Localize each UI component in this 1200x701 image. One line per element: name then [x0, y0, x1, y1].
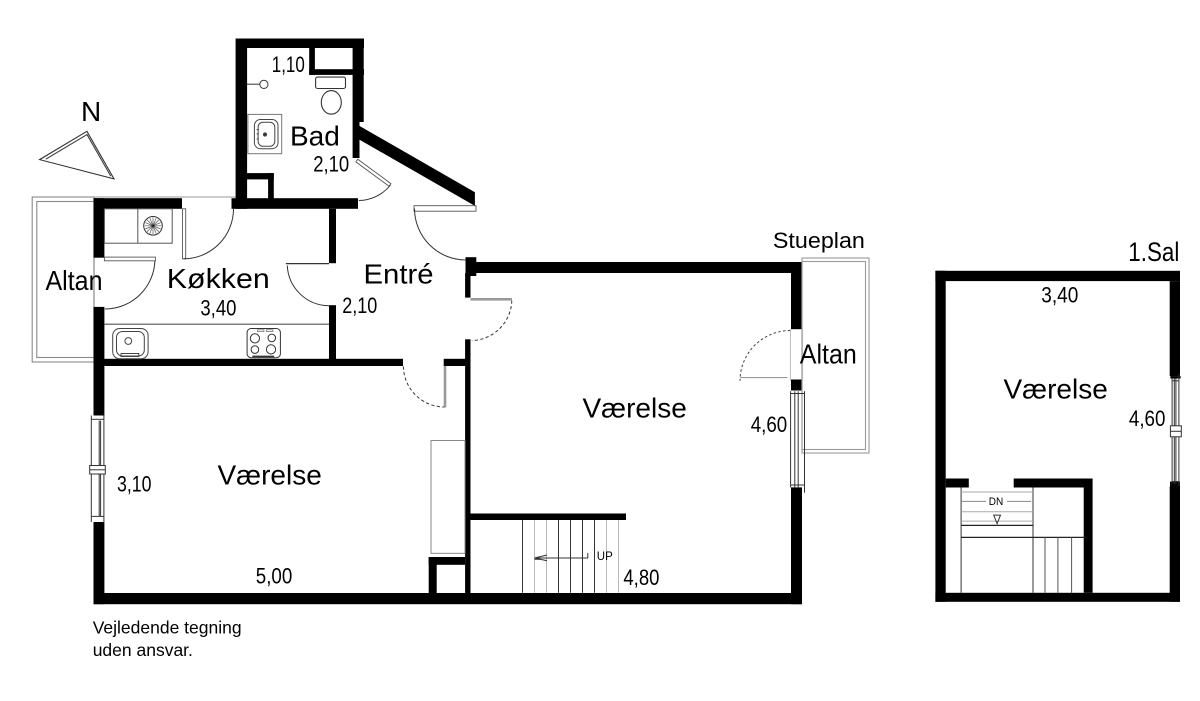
- svg-text:Værelse: Værelse: [1004, 374, 1108, 405]
- svg-text:Altan: Altan: [46, 265, 103, 296]
- svg-text:2,10: 2,10: [313, 151, 349, 176]
- svg-text:DN: DN: [989, 496, 1004, 508]
- svg-text:Stueplan: Stueplan: [773, 228, 865, 253]
- svg-text:1,10: 1,10: [272, 52, 305, 77]
- svg-text:Altan: Altan: [800, 339, 857, 370]
- svg-text:4,60: 4,60: [751, 412, 788, 437]
- svg-text:3,40: 3,40: [1041, 283, 1078, 308]
- svg-text:Køkken: Køkken: [167, 263, 270, 294]
- svg-text:Værelse: Værelse: [218, 460, 322, 491]
- svg-text:Bad: Bad: [290, 120, 340, 151]
- svg-text:3,40: 3,40: [200, 296, 236, 321]
- svg-text:4,80: 4,80: [623, 565, 659, 590]
- svg-text:N: N: [81, 96, 101, 127]
- svg-text:Vejledende tegning: Vejledende tegning: [93, 618, 242, 638]
- svg-text:UP: UP: [597, 551, 613, 563]
- svg-text:3,10: 3,10: [117, 472, 152, 497]
- svg-text:Værelse: Værelse: [583, 392, 687, 423]
- svg-text:Entré: Entré: [364, 259, 434, 290]
- svg-text:uden ansvar.: uden ansvar.: [93, 640, 193, 660]
- svg-text:5,00: 5,00: [256, 563, 292, 588]
- svg-text:1.Sal: 1.Sal: [1128, 237, 1179, 267]
- svg-text:4,60: 4,60: [1129, 406, 1166, 431]
- svg-text:2,10: 2,10: [342, 293, 377, 318]
